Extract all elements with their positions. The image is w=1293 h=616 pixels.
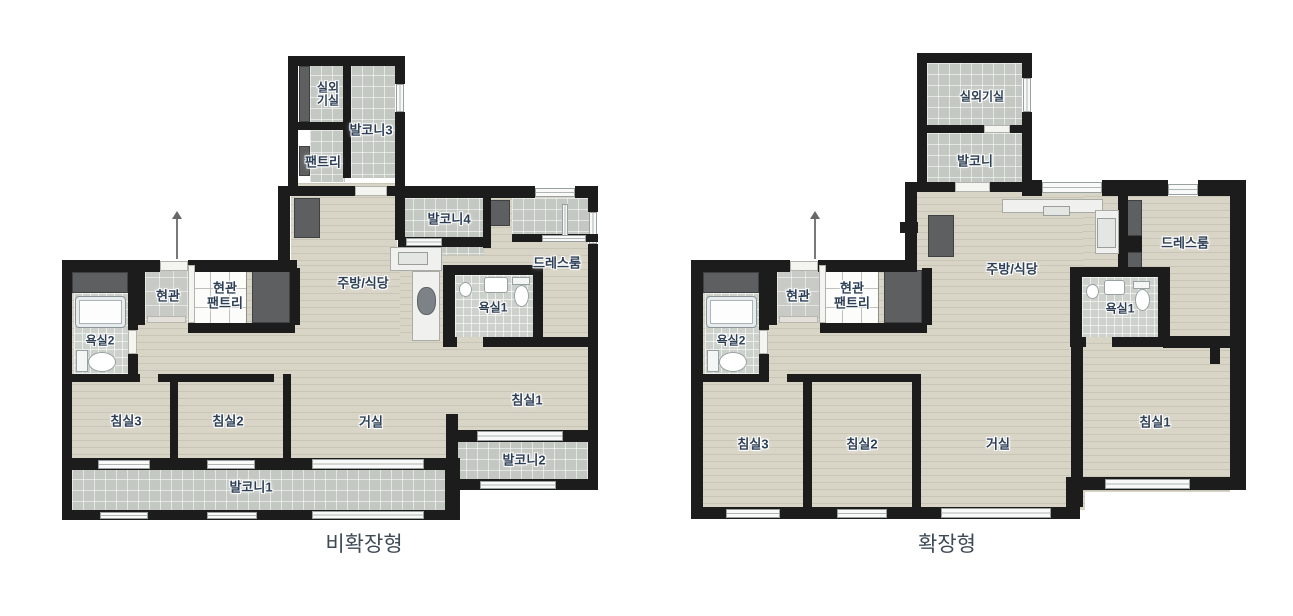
bathtub — [706, 296, 757, 328]
wall — [759, 354, 769, 378]
label-line: 현관 — [840, 280, 864, 295]
toilet-tank — [1133, 281, 1150, 289]
door — [955, 182, 990, 192]
window — [1105, 479, 1190, 489]
closet — [928, 215, 954, 257]
wall — [769, 263, 777, 325]
entrance-step — [779, 316, 818, 323]
toilet-bowl — [719, 352, 747, 372]
wall — [1070, 337, 1086, 347]
wall — [1230, 185, 1246, 490]
wall — [820, 323, 927, 333]
wall — [1210, 336, 1220, 364]
wall — [759, 272, 769, 330]
window — [1023, 78, 1031, 112]
wall — [905, 182, 955, 192]
entrance-arrow-icon — [810, 211, 820, 219]
entrance-door — [790, 261, 818, 271]
room-label-bed3: 침실3 — [737, 438, 768, 453]
room-label-bath2: 욕실2 — [717, 334, 746, 347]
window — [1042, 182, 1102, 193]
wall — [1118, 196, 1128, 267]
room-label-kitchen: 주방/식당 — [986, 263, 1037, 278]
wall — [1022, 53, 1032, 78]
wall — [1112, 337, 1170, 347]
wall — [917, 53, 1032, 63]
door — [759, 330, 768, 354]
label-line: 팬트리 — [834, 295, 870, 310]
entrance-arrow-icon — [814, 219, 816, 259]
room-label-outdoor-unit: 실외기실 — [960, 90, 1004, 103]
window — [1168, 184, 1198, 195]
closet — [703, 272, 759, 293]
washbasin — [1104, 280, 1125, 295]
door — [819, 265, 826, 323]
wall — [1070, 267, 1082, 347]
window — [941, 508, 1051, 518]
wall — [922, 268, 932, 325]
toilet-bowl — [1135, 289, 1150, 311]
door — [984, 125, 1010, 133]
toilet-tank — [707, 350, 719, 372]
wall — [917, 53, 927, 192]
room-label-balcony: 발코니 — [957, 155, 993, 170]
wall — [927, 125, 984, 133]
kitchen-sink — [1043, 206, 1070, 216]
oven — [1097, 218, 1116, 248]
room-label-bath1: 욕실1 — [1106, 302, 1135, 315]
plan-caption-expanded: 확장형 — [918, 528, 976, 558]
room-label-living: 거실 — [986, 438, 1010, 453]
wall — [691, 374, 769, 382]
room-label-dressroom: 드레스룸 — [1161, 237, 1209, 252]
window — [837, 509, 887, 518]
room-label-bed1: 침실1 — [1139, 416, 1170, 431]
wall — [912, 374, 921, 507]
wall — [1158, 267, 1170, 347]
wall — [905, 192, 917, 266]
floor-plan-expanded: 실외기실 발코니 드레스룸 주방/식당 현관 현관 팬트리 욕실1 욕실2 침실… — [0, 0, 1293, 616]
window — [726, 509, 780, 518]
wall — [1022, 180, 1042, 196]
room-label-entrance-pantry: 현관 팬트리 — [834, 281, 870, 310]
wall — [1010, 125, 1022, 133]
wall — [691, 260, 703, 519]
closet — [884, 270, 922, 323]
wall — [818, 260, 917, 272]
wall — [1102, 180, 1168, 196]
room-label-bed2: 침실2 — [846, 438, 877, 453]
bath-basin — [1086, 284, 1099, 299]
room-label-entrance: 현관 — [786, 290, 810, 305]
wall — [803, 374, 812, 507]
wall — [1070, 267, 1170, 277]
floor-plan-image: 실외 기실 발코니3 팬트리 발코니4 드레스룸 주방/식당 현관 현관 팬트리… — [0, 0, 1293, 616]
